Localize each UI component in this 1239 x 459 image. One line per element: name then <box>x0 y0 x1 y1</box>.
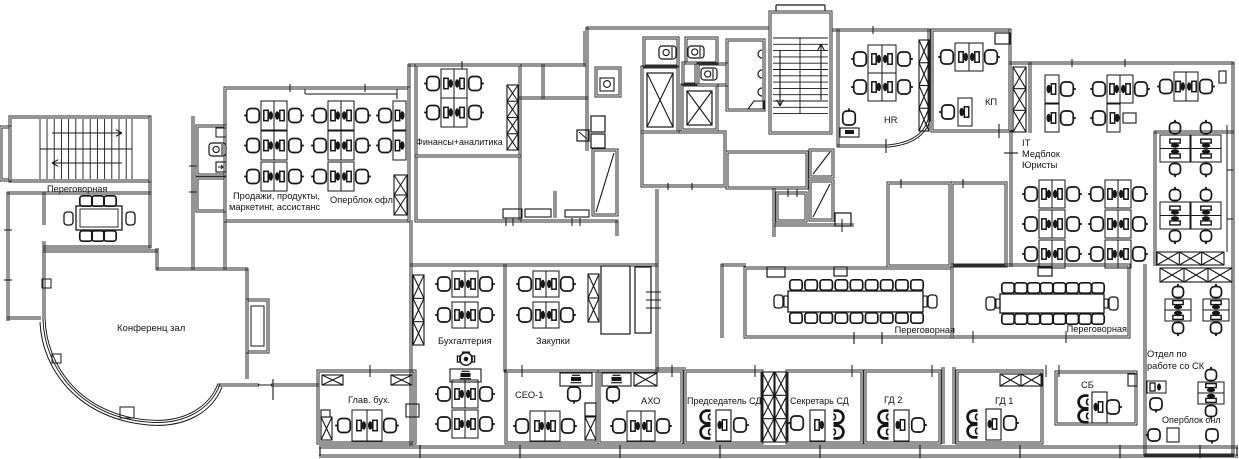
svg-text:HR: HR <box>884 115 898 125</box>
svg-text:Отдел по: Отдел по <box>1147 349 1187 359</box>
svg-text:Закупки: Закупки <box>536 336 570 346</box>
svg-text:КП: КП <box>985 97 997 107</box>
svg-text:Медблок: Медблок <box>1022 149 1061 159</box>
svg-text:Переговорная: Переговорная <box>1067 324 1127 334</box>
svg-text:СБ: СБ <box>1081 380 1094 390</box>
svg-text:Глав. бух.: Глав. бух. <box>348 395 390 405</box>
svg-text:Финансы+аналитика: Финансы+аналитика <box>416 137 503 147</box>
svg-text:работе со СК: работе со СК <box>1147 361 1205 371</box>
svg-text:Бухгалтерия: Бухгалтерия <box>438 336 492 346</box>
svg-text:Оперблок офл: Оперблок офл <box>330 195 393 205</box>
svg-text:Оперблок онл: Оперблок онл <box>1162 415 1221 425</box>
svg-text:Продажи, продукты,: Продажи, продукты, <box>233 191 320 201</box>
svg-text:ГД 2: ГД 2 <box>884 395 902 405</box>
svg-text:ГД 1: ГД 1 <box>995 396 1013 406</box>
svg-text:АХО: АХО <box>641 396 660 406</box>
svg-text:Переговорная: Переговорная <box>895 325 955 335</box>
svg-text:Конференц зал: Конференц зал <box>117 323 185 334</box>
svg-text:СЕО-1: СЕО-1 <box>515 390 543 400</box>
svg-text:IT: IT <box>1022 138 1031 148</box>
svg-text:Председатель СД: Председатель СД <box>687 396 761 406</box>
svg-text:Юристы: Юристы <box>1022 160 1058 170</box>
svg-text:Переговорная: Переговорная <box>47 184 107 194</box>
svg-text:маркетинг, ассистанс: маркетинг, ассистанс <box>229 202 321 212</box>
svg-text:Секретарь СД: Секретарь СД <box>790 396 849 406</box>
